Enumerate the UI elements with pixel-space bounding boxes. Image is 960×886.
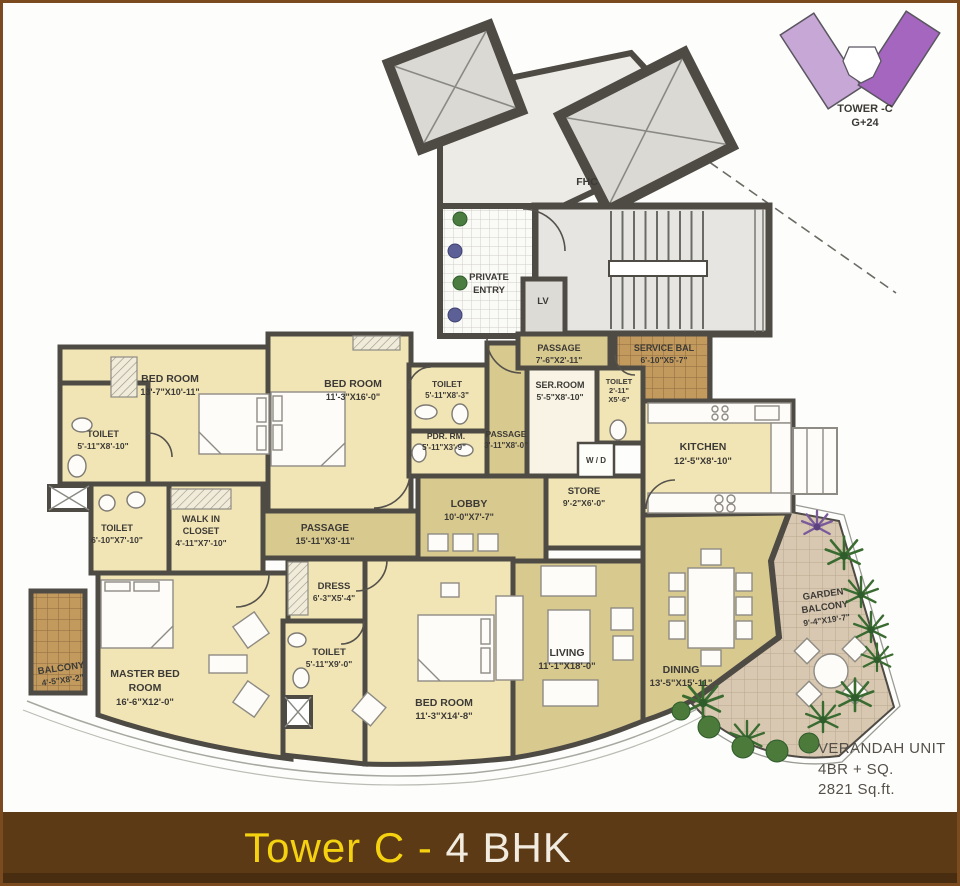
svg-text:5'-5"X8'-10": 5'-5"X8'-10" (536, 392, 583, 402)
toilet4-label: TOILET (312, 647, 346, 658)
bush (698, 716, 720, 738)
svg-text:15'-11"X3'-11": 15'-11"X3'-11" (296, 536, 355, 546)
svg-text:16'-6"X12'-0": 16'-6"X12'-0" (116, 697, 174, 708)
pdr-label: PDR. RM. (427, 431, 465, 441)
bedroom1-label: BED ROOM (141, 373, 199, 385)
unit-info: VERANDAH UNIT 4BR + SQ. 2821 Sq.ft. (818, 739, 946, 801)
svg-text:2'-11": 2'-11" (609, 386, 629, 395)
svg-text:3'-11"X8'-0": 3'-11"X8'-0" (484, 441, 528, 450)
wardrobe-bedroom-2 (353, 336, 400, 350)
passage2-label: PASSAGE (486, 429, 527, 439)
bedroom3-label: BED ROOM (415, 697, 473, 709)
banner-title-tower: Tower C - (244, 824, 445, 871)
wardrobe-dress (288, 562, 308, 615)
toilet-service-label: TOILET (606, 377, 633, 386)
key-plan: TOWER -C G+24 (780, 11, 939, 129)
walkin-label: WALK IN (182, 514, 220, 524)
svg-text:4'-11"X7'-10": 4'-11"X7'-10" (175, 538, 226, 548)
servant-room-label: SER.ROOM (535, 380, 584, 390)
svg-text:9'-2"X6'-0": 9'-2"X6'-0" (563, 498, 605, 508)
garden-balcony-label: GARDEN BALCONY 9'-4"X19'-7" (799, 586, 851, 628)
passage-top-label: PASSAGE (537, 343, 580, 353)
banner-title-bhk: 4 BHK (445, 824, 571, 871)
store-label: STORE (568, 486, 601, 497)
toilet2-label: TOILET (432, 379, 463, 389)
side-table (209, 655, 247, 673)
bush (766, 740, 788, 762)
toilet1-label: TOILET (87, 429, 119, 439)
staircase (535, 206, 769, 334)
kitchen-label: KITCHEN (680, 441, 727, 453)
master-bedroom-label: MASTER BED (110, 668, 180, 680)
passage-main-label: PASSAGE (301, 523, 349, 534)
bush (732, 736, 754, 758)
floorplan-page: TOWER -C G+24 FHC PRIVATE ENTRY LV BED R… (0, 0, 960, 886)
duct-shaft-center (285, 697, 311, 727)
key-plan-subtitle: G+24 (851, 117, 879, 129)
svg-text:13'-5"X15'-11": 13'-5"X15'-11" (650, 678, 713, 689)
svg-text:11'-3"X16'-0": 11'-3"X16'-0" (326, 392, 380, 402)
wardrobe-walkin (171, 489, 231, 509)
bedroom2-label: BED ROOM (324, 378, 382, 390)
banner-bottom-shade (3, 873, 957, 883)
svg-text:5'-11"X3'-9": 5'-11"X3'-9" (422, 443, 466, 452)
unit-info-line1: VERANDAH UNIT (818, 739, 946, 760)
dress-label: DRESS (318, 581, 351, 592)
unit-info-line2: 4BR + SQ. (818, 760, 946, 781)
svg-text:5'-11"X8'-10": 5'-11"X8'-10" (77, 441, 128, 451)
side-table (441, 583, 459, 597)
lobby-seating (428, 534, 498, 551)
svg-text:ROOM: ROOM (129, 682, 162, 694)
bed-bedroom-3 (418, 615, 494, 681)
floorplan-drawing: TOWER -C G+24 FHC PRIVATE ENTRY LV BED R… (3, 3, 957, 815)
title-banner: Tower C - 4 BHK (3, 812, 957, 883)
bed-bedroom-1 (199, 394, 269, 454)
fhc-label: FHC (576, 176, 598, 188)
lv-label: LV (537, 296, 549, 307)
lv-room (523, 279, 565, 336)
svg-text:10'-0"X7'-7": 10'-0"X7'-7" (444, 512, 494, 522)
bush (799, 733, 819, 753)
svg-text:6'-10"X5'-7": 6'-10"X5'-7" (640, 355, 687, 365)
duct-shaft-left (49, 486, 89, 510)
svg-text:12'-5"X8'-10": 12'-5"X8'-10" (674, 456, 732, 467)
svg-text:6'-3"X5'-4": 6'-3"X5'-4" (313, 593, 355, 603)
svg-text:7'-6"X2'-11": 7'-6"X2'-11" (536, 355, 583, 365)
private-entry-label: PRIVATE (469, 272, 509, 283)
svg-text:CLOSET: CLOSET (183, 526, 220, 536)
living-label: LIVING (549, 647, 584, 659)
wardrobe-bedroom-1 (111, 357, 137, 397)
dining-label: DINING (663, 664, 700, 676)
wd-label: W / D (586, 456, 606, 465)
key-plan-title: TOWER -C (837, 103, 892, 115)
bush (672, 702, 690, 720)
svg-text:11'-3"X14'-8": 11'-3"X14'-8" (415, 711, 472, 722)
svg-text:5'-11"X9'-0": 5'-11"X9'-0" (306, 659, 353, 669)
svg-text:6'-10"X7'-10": 6'-10"X7'-10" (91, 535, 143, 545)
svg-text:5'-11"X8'-3": 5'-11"X8'-3" (425, 391, 469, 400)
unit-info-line3: 2821 Sq.ft. (818, 780, 946, 801)
page-title: Tower C - 4 BHK (244, 824, 572, 872)
svg-text:ENTRY: ENTRY (473, 285, 506, 296)
bed-master-bedroom (101, 580, 173, 648)
lobby-label: LOBBY (451, 498, 488, 510)
svg-text:X5'-6": X5'-6" (608, 395, 630, 404)
service-balcony-label: SERVICE BAL (634, 343, 695, 353)
toilet3-label: TOILET (101, 523, 133, 533)
svg-text:13'-7"X10'-11": 13'-7"X10'-11" (140, 387, 199, 397)
bed-bedroom-2 (271, 392, 345, 466)
svg-text:11'-1"X18'-0": 11'-1"X18'-0" (538, 661, 595, 672)
